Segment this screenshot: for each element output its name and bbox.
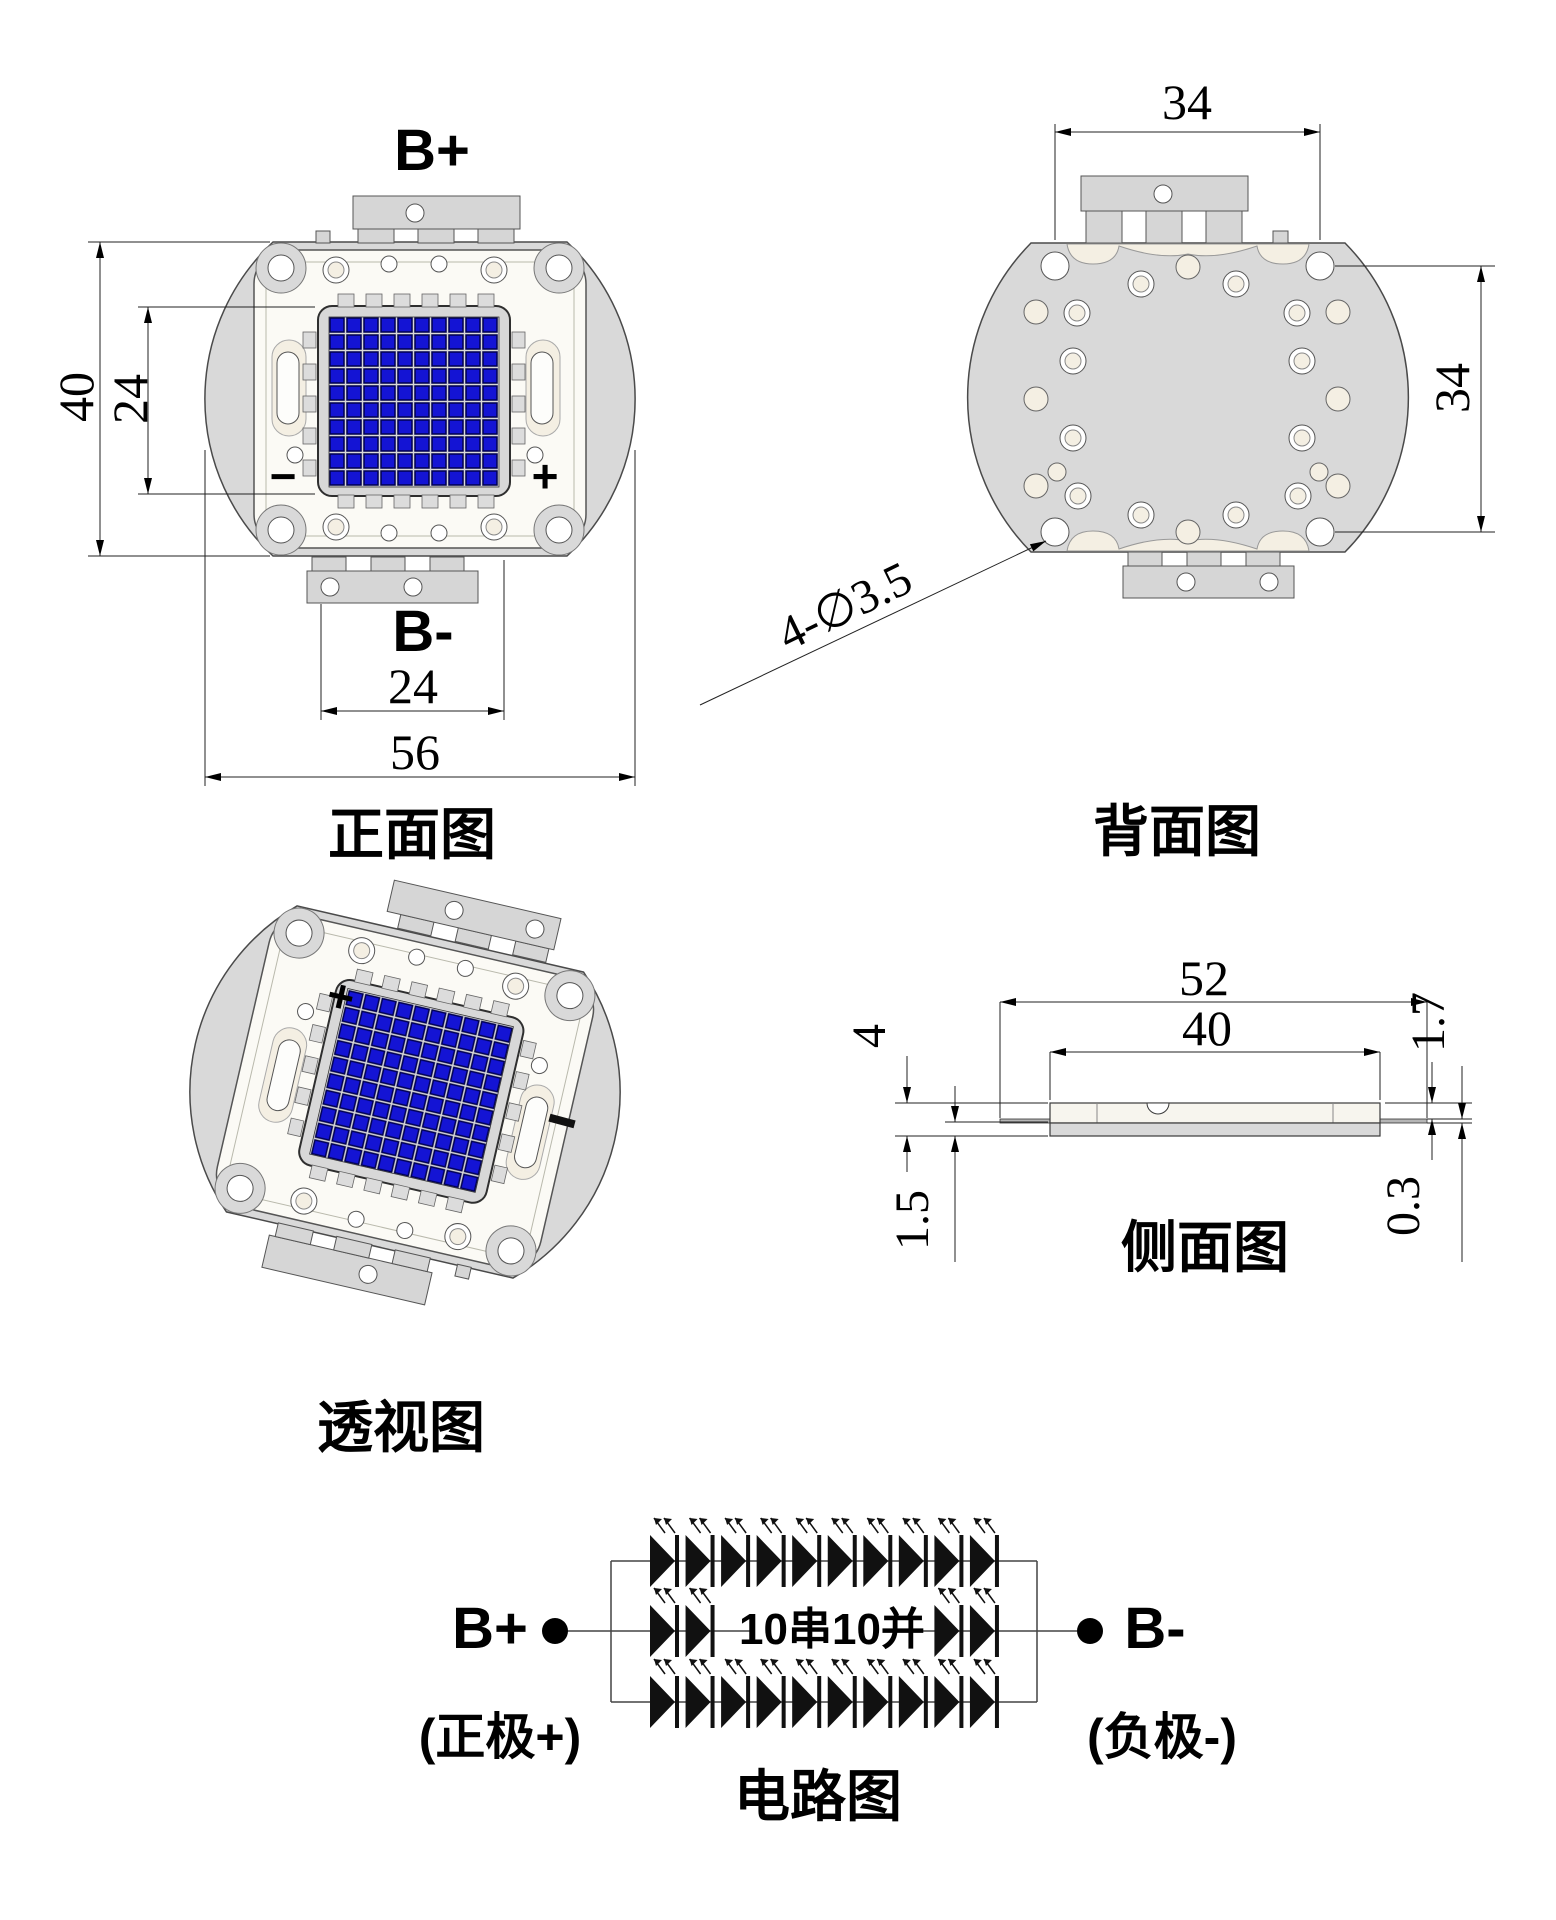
side-dim-total-length: 52 [1179,953,1229,1003]
bplus-terminal-dot [542,1618,568,1644]
circuit-anode-label: (正极+) [419,1712,582,1762]
perspective-view-title: 透视图 [317,1400,485,1456]
back-dim-right: 34 [1427,363,1477,413]
front-pos-mark: + [532,453,559,499]
led-module-datasheet: B+ 40 24 − + B- 24 56 正面图 34 34 4-∅3.5 背… [0,0,1556,1920]
front-dim-height: 40 [51,372,101,422]
back-bottom-electrode-tab [1123,552,1294,598]
back-view-title: 背面图 [1093,804,1261,860]
circuit-config-label: 10串10并 [739,1608,925,1652]
front-dim-led-width: 24 [388,661,438,711]
side-right-lead [1378,1119,1427,1123]
circuit-bminus-label: B- [1124,1600,1185,1658]
side-top-plate [1050,1103,1380,1123]
led-chip-grid [329,317,499,487]
side-dim-base-thickness: 1.5 [889,1190,937,1250]
front-top-electrode-tab [316,196,520,243]
front-view-module [205,196,635,603]
perspective-view [150,845,661,1338]
front-bottom-electrode-tab [307,557,478,603]
front-dim-width: 56 [390,727,440,777]
side-dim-lead-thickness: 0.3 [1380,1176,1428,1236]
side-view-title: 侧面图 [1121,1220,1289,1276]
front-bminus-label: B- [392,603,453,661]
circuit-view-title: 电路图 [734,1769,902,1825]
back-top-electrode-tab [1081,176,1288,243]
front-neg-mark: − [270,453,297,499]
circuit-bplus-label: B+ [452,1600,528,1658]
front-dim-led-height: 24 [105,374,155,424]
side-dim-body-length: 40 [1182,1003,1232,1053]
side-dim-step-height: 1.7 [1405,992,1453,1052]
front-bplus-label: B+ [394,122,470,180]
side-base-plate [1050,1123,1380,1136]
back-dim-top: 34 [1162,77,1212,127]
circuit-cathode-label: (负极-) [1087,1712,1237,1762]
front-view-title: 正面图 [328,807,496,863]
bminus-terminal-dot [1077,1618,1103,1644]
side-dim-height: 4 [846,1024,894,1048]
